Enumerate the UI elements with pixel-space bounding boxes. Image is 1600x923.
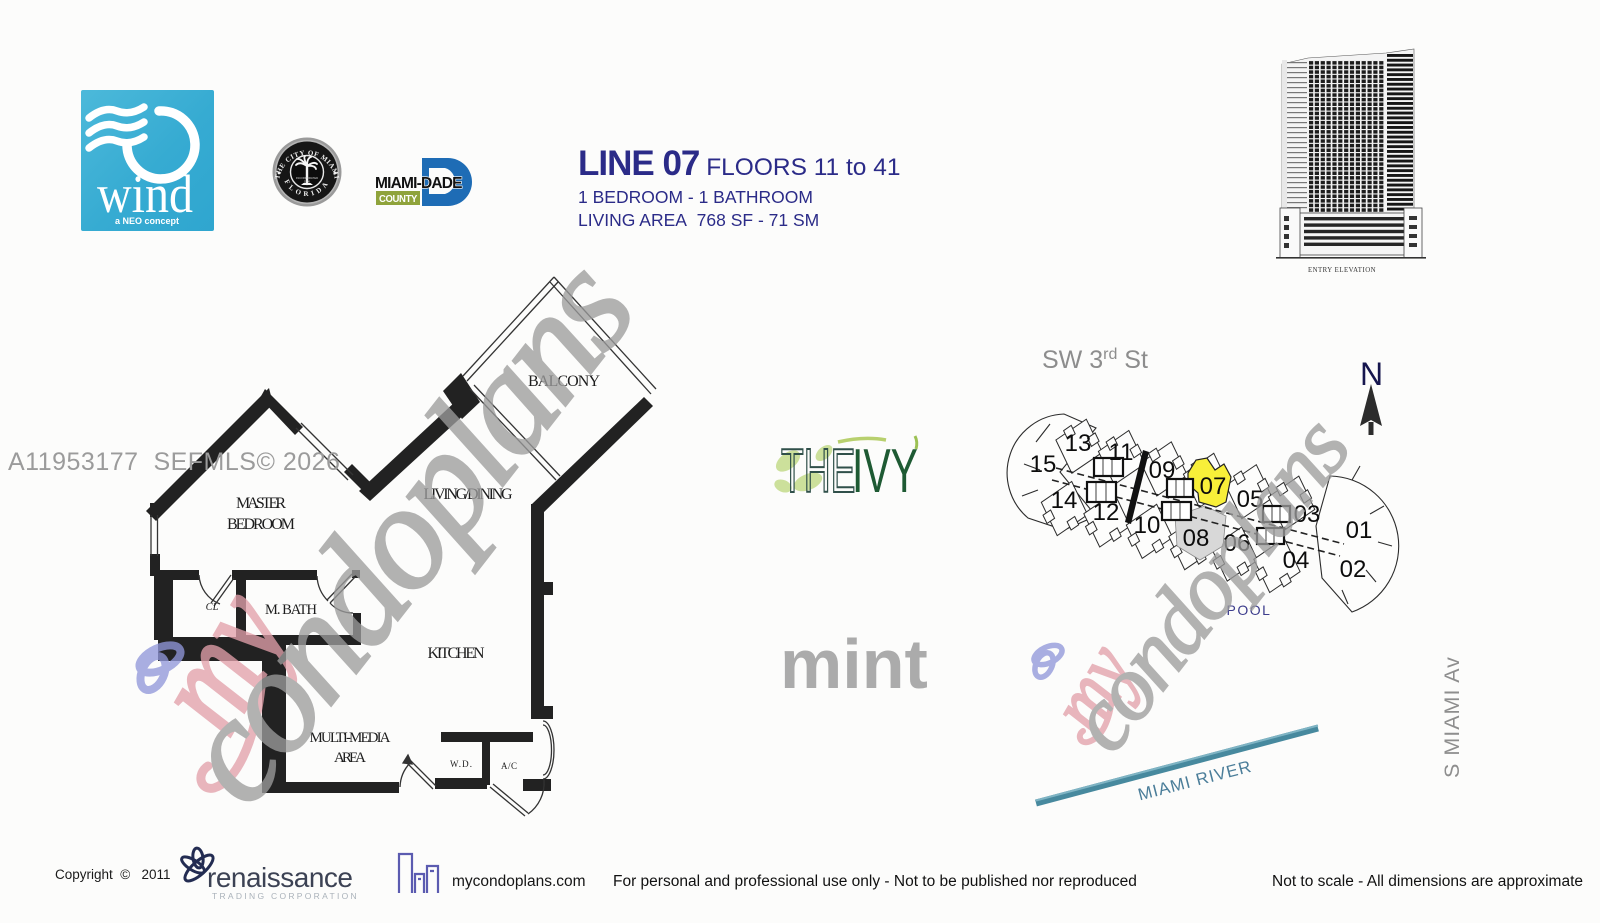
svg-text:TRADING CORPORATION: TRADING CORPORATION [212,891,359,901]
svg-text:condoplans: condoplans [1047,399,1369,770]
svg-text:renaissance: renaissance [207,862,352,893]
svg-text:condoplans: condoplans [143,231,664,832]
